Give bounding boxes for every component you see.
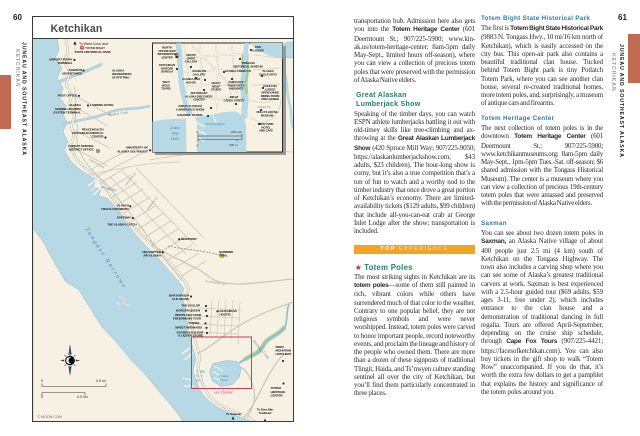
svg-text:NEWPOINT: NEWPOINT [181,237,197,241]
svg-text:To Deer MtnTrailhead: To Deer MtnTrailhead [257,407,274,415]
svg-text:ALASKA CREPE CO: ALASKA CREPE CO [225,69,252,73]
svg-text:FOREST SERVICEDISTRICT OFFICE: FOREST SERVICEDISTRICT OFFICE [68,144,93,152]
svg-text:0: 0 [197,130,199,134]
svg-text:SOURDOUGH BAR& LIQUOR STORE: SOURDOUGH BAR& LIQUOR STORE [177,330,204,337]
svg-text:200 m: 200 m [229,143,238,147]
svg-text:THE HYSLOP: THE HYSLOP [181,304,200,308]
svg-text:To Saxman: To Saxman [226,412,241,416]
svg-text:200 yds: 200 yds [231,130,242,134]
svg-text:BURGER QUEEN: BURGER QUEEN [176,308,201,312]
svg-text:SAFEWAY: SAFEWAY [117,216,132,220]
svg-text:0: 0 [41,379,43,383]
svg-text:0: 0 [197,144,199,148]
svg-text:KETCHIKANVISITORSBUREAU: KETCHIKANVISITORSBUREAU [159,63,175,74]
svg-text:FABULOUSFIBER GIFTSAND KNITS: FABULOUSFIBER GIFTSAND KNITS [228,80,245,91]
svg-text:SWEET MERMAIDS: SWEET MERMAIDS [175,325,202,329]
svg-text:THE ALASKA CATCH: THE ALASKA CATCH [107,222,137,226]
svg-text:Thomas Basin: Thomas Basin [205,122,225,126]
svg-text:STATE HISTORICAL PARK: STATE HISTORICAL PARK [75,50,112,54]
svg-text:0.5 mi: 0.5 mi [96,379,106,383]
svg-text:HELICOPTERAIR ALASKA: HELICOPTERAIR ALASKA [142,250,162,258]
svg-text:SCANLONGALLERY: SCANLONGALLERY [192,69,205,76]
svg-text:GREAT ALASKANLUMBERJACK SHOW: GREAT ALASKANLUMBERJACK SHOW [176,104,205,111]
svg-text:BAR HARBORALE HOUSE: BAR HARBORALE HOUSE [169,293,190,301]
svg-text:BERTS SEA CRABFISHERMENS TOUR: BERTS SEA CRABFISHERMENS TOUR [173,313,202,320]
svg-text:CruiseShipDock: CruiseShipDock [170,126,180,141]
svg-text:TUNNEL: TUNNEL [188,321,200,325]
svg-text:LANDING HOTEL: LANDING HOTEL [90,103,114,107]
svg-text:see Detail: see Detail [214,390,233,395]
svg-text:BARANOF FISHING: BARANOF FISHING [177,113,203,117]
svg-text:0: 0 [41,395,43,399]
svg-text:Ketchikan: Ketchikan [51,23,103,35]
svg-text:POST OFFICE: POST OFFICE [58,93,77,97]
svg-text:© MOON.COM: © MOON.COM [38,415,62,419]
svg-text:CREEK ST: CREEK ST [258,105,271,109]
svg-text:0.5 km: 0.5 km [77,395,88,399]
